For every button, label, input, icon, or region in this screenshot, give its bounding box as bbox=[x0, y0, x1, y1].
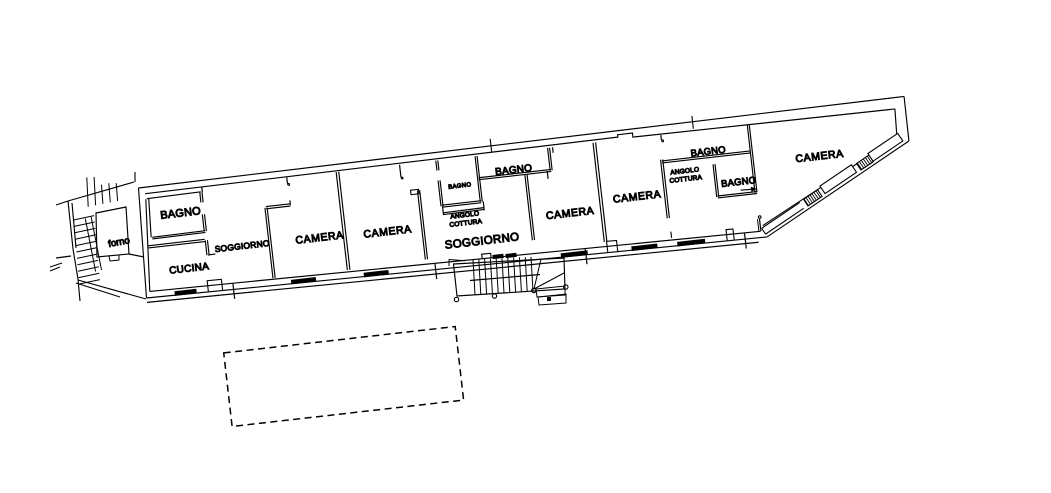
svg-text:forno: forno bbox=[107, 235, 130, 250]
svg-text:SOGGIORNO: SOGGIORNO bbox=[214, 238, 270, 254]
svg-text:CAMERA: CAMERA bbox=[612, 188, 662, 205]
svg-text:BAGNO: BAGNO bbox=[448, 182, 472, 191]
svg-text:CAMERA: CAMERA bbox=[363, 223, 413, 240]
svg-text:BAGNO: BAGNO bbox=[690, 145, 726, 160]
svg-text:CUCINA: CUCINA bbox=[169, 261, 210, 277]
svg-text:CAMERA: CAMERA bbox=[545, 205, 595, 222]
svg-text:BAGNO: BAGNO bbox=[160, 205, 202, 222]
svg-text:CAMERA: CAMERA bbox=[295, 229, 345, 246]
svg-text:SOGGIORNO: SOGGIORNO bbox=[444, 231, 520, 252]
svg-text:CAMERA: CAMERA bbox=[795, 148, 845, 165]
